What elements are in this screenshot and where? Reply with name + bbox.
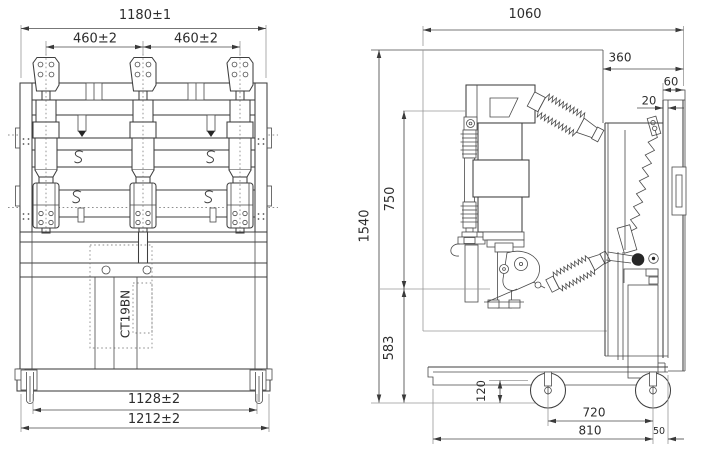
dim-overhang-label: 50 [653, 426, 665, 437]
closing-spring [628, 130, 658, 240]
dim-base-inner-label: 1128±2 [128, 392, 180, 407]
drawing-canvas: CT19BN 1180±1 460±2 460± [0, 0, 702, 459]
pivot-point [632, 253, 645, 266]
dim-20-label: 20 [642, 94, 657, 108]
operating-linkage [606, 116, 661, 283]
side-cabinet [605, 90, 686, 378]
dim-wheel-base-label: 720 [583, 406, 606, 420]
front-view: CT19BN 1180±1 460±2 460± [8, 8, 278, 432]
dim-total-width-label: 1180±1 [119, 8, 171, 23]
front-cabinet: CT19BN [15, 232, 272, 391]
side-view: 1060 360 60 20 1540 750 583 [358, 7, 687, 444]
pole-right [227, 54, 253, 233]
dim-base-outer-label: 1212±2 [128, 412, 180, 427]
cabinet-door [628, 285, 658, 378]
lower-bushing [544, 247, 612, 296]
dim-chassis-depth-label: 810 [579, 424, 602, 438]
spring-top-clevis [647, 116, 661, 136]
dim-upper-height-label: 750 [383, 187, 398, 212]
dim-rear-depth-label: 360 [609, 51, 632, 65]
spring-symbol [73, 191, 82, 203]
dim-overall-height-label: 1540 [358, 209, 373, 242]
dim-60-label: 60 [664, 75, 679, 89]
spring-bottom-cylinder [617, 225, 637, 254]
dim-lower-height-label: 583 [382, 336, 397, 361]
technical-drawing-page: CT19BN 1180±1 460±2 460± [0, 0, 702, 459]
dim-wheel-height-label: 120 [474, 380, 488, 402]
dim-pole-pitch-left-label: 460±2 [73, 32, 117, 47]
dim-pole-pitch-right-label: 460±2 [174, 32, 218, 47]
pole-left [33, 54, 59, 233]
spring-symbol [205, 191, 214, 203]
side-pole-assembly [451, 85, 545, 308]
mechanism-type-label: CT19BN [119, 290, 133, 338]
dim-overall-depth-label: 1060 [508, 7, 541, 22]
upper-bushing [525, 88, 607, 148]
